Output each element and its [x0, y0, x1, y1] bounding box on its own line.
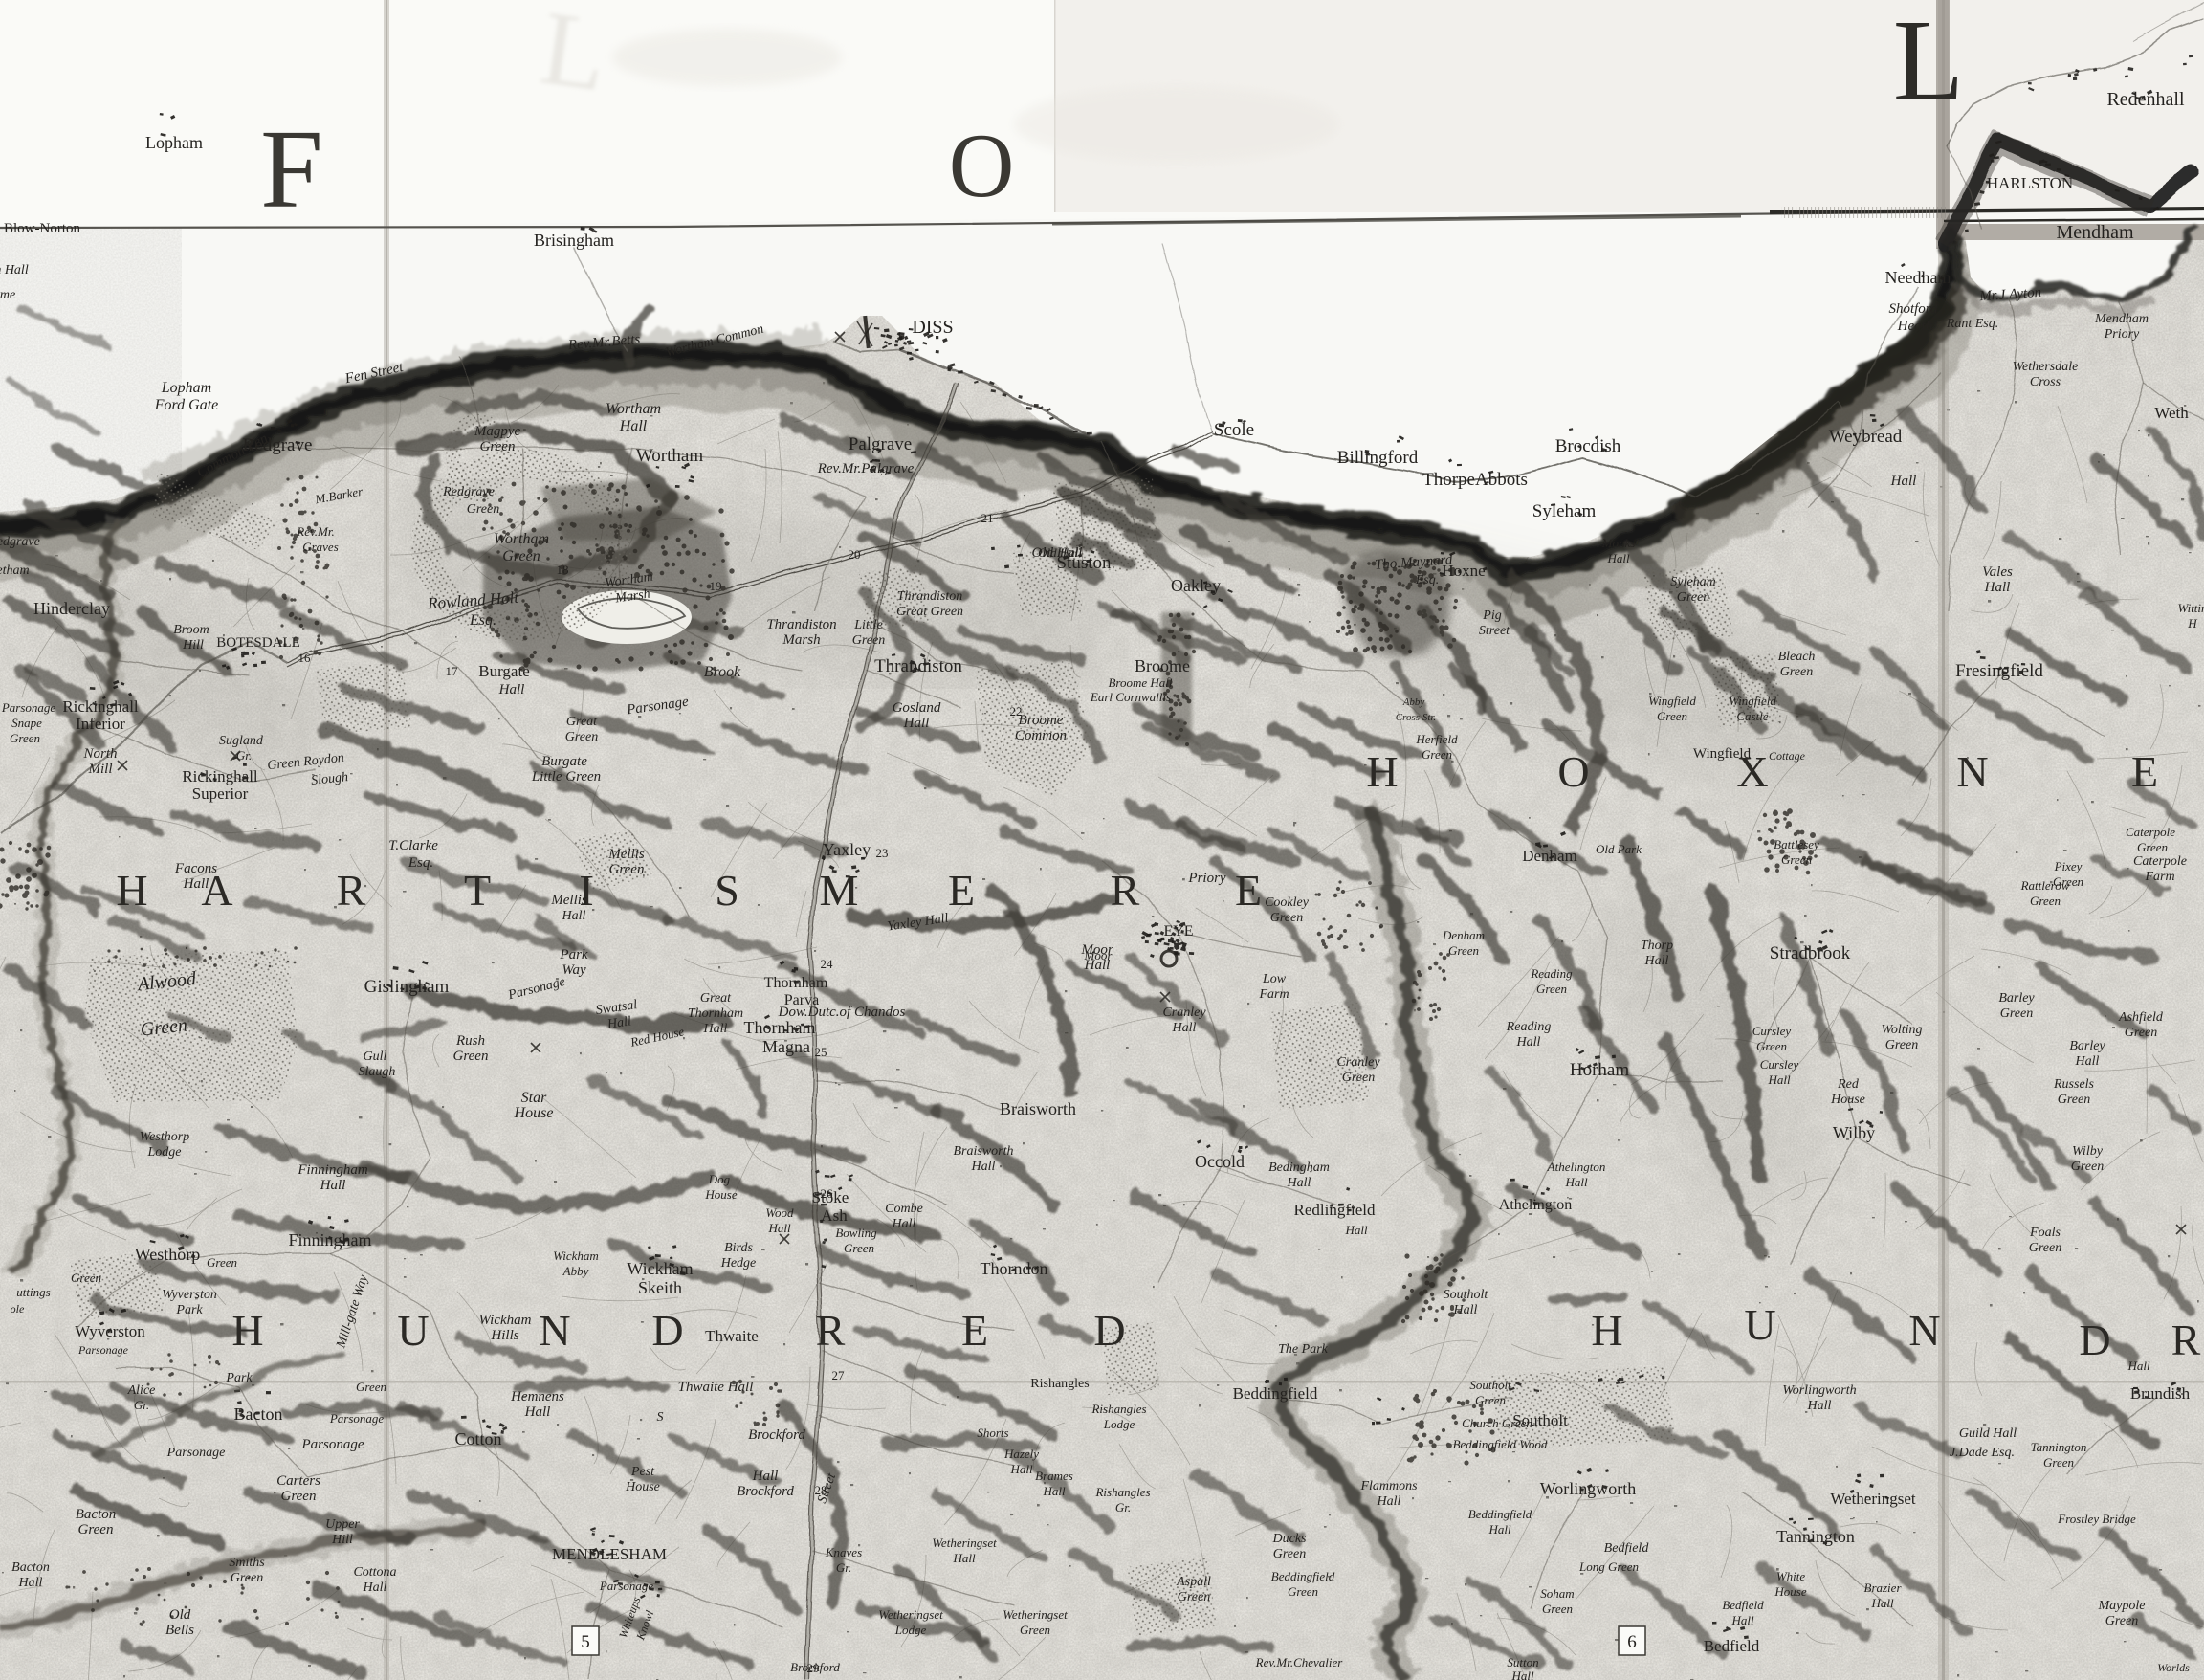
svg-text:Vales: Vales: [1982, 564, 2013, 580]
svg-text:Old Hall: Old Hall: [1038, 545, 1082, 560]
svg-text:24: 24: [821, 957, 834, 971]
svg-text:Reading: Reading: [1506, 1020, 1552, 1034]
svg-text:Occold: Occold: [1195, 1152, 1245, 1171]
svg-text:U: U: [1744, 1300, 1775, 1349]
svg-text:Yaxley: Yaxley: [823, 840, 871, 859]
svg-text:O: O: [1557, 747, 1589, 796]
svg-text:E: E: [948, 866, 975, 915]
svg-text:Bedfield: Bedfield: [1722, 1598, 1764, 1612]
svg-text:Brocdish: Brocdish: [1555, 436, 1621, 456]
svg-text:Graves: Graves: [302, 540, 339, 554]
svg-text:Pig: Pig: [1482, 608, 1501, 623]
svg-text:Church Green: Church Green: [1462, 1416, 1532, 1430]
svg-text:Gr.: Gr.: [236, 748, 252, 763]
svg-text:Skeith: Skeith: [638, 1278, 682, 1297]
svg-text:Rishangles: Rishangles: [1030, 1377, 1089, 1391]
svg-text:Rickinghall: Rickinghall: [182, 767, 258, 785]
svg-text:S: S: [715, 866, 739, 915]
svg-text:Tannington: Tannington: [2031, 1440, 2087, 1454]
svg-text:Green: Green: [852, 633, 885, 648]
svg-text:Rev.Mr.Palgrave: Rev.Mr.Palgrave: [817, 461, 915, 476]
svg-text:Soham: Soham: [1540, 1586, 1574, 1601]
svg-text:Brisingham: Brisingham: [534, 231, 614, 250]
svg-text:Cotton: Cotton: [454, 1429, 501, 1448]
svg-text:Green: Green: [1780, 665, 1813, 679]
svg-text:Beddingfield: Beddingfield: [1233, 1384, 1318, 1403]
svg-text:Green: Green: [2071, 1160, 2104, 1174]
svg-text:Syleham: Syleham: [1670, 575, 1715, 589]
svg-text:Castle: Castle: [1736, 709, 1768, 723]
svg-text:Star: Star: [521, 1090, 547, 1106]
svg-text:Wickham: Wickham: [553, 1249, 599, 1263]
svg-text:Knaves: Knaves: [825, 1545, 862, 1559]
svg-text:Green: Green: [1273, 1547, 1306, 1561]
svg-text:Denham: Denham: [1442, 928, 1485, 942]
svg-text:Pixey: Pixey: [2054, 859, 2083, 873]
svg-text:Green: Green: [207, 1255, 237, 1270]
svg-text:H: H: [116, 866, 147, 915]
svg-text:Brockford: Brockford: [737, 1484, 794, 1499]
svg-text:Fresingfield: Fresingfield: [1955, 661, 2043, 681]
svg-text:Wittin: Wittin: [2177, 601, 2204, 615]
svg-text:Frostley Bridge: Frostley Bridge: [2057, 1512, 2136, 1526]
svg-text:Athelington: Athelington: [1547, 1160, 1606, 1174]
svg-text:Westhorp: Westhorp: [140, 1130, 189, 1144]
svg-text:Green: Green: [609, 862, 645, 877]
svg-text:Gislingham: Gislingham: [364, 977, 450, 997]
svg-text:Esq.: Esq.: [408, 855, 433, 871]
svg-text:Way: Way: [562, 962, 586, 978]
svg-text:Thrandiston: Thrandiston: [874, 656, 962, 676]
svg-text:Hall: Hall: [363, 1581, 387, 1595]
svg-text:Long Green: Long Green: [1578, 1559, 1639, 1574]
svg-text:Mendham: Mendham: [2056, 222, 2134, 243]
svg-text:Low: Low: [1262, 972, 1287, 986]
svg-text:Reading: Reading: [1530, 966, 1573, 981]
svg-text:Weybread: Weybread: [1829, 427, 1903, 447]
svg-text:Blow-Norton: Blow-Norton: [4, 221, 80, 236]
svg-text:N: N: [1908, 1306, 1940, 1355]
svg-text:ole: ole: [11, 1302, 25, 1315]
svg-text:6: 6: [1627, 1632, 1637, 1652]
svg-text:Brundish: Brundish: [2130, 1384, 2191, 1403]
svg-text:Inferior: Inferior: [76, 715, 125, 733]
svg-text:Carters: Carters: [276, 1473, 320, 1489]
svg-text:Finningham: Finningham: [297, 1162, 367, 1178]
svg-text:Caterpole: Caterpole: [2126, 825, 2175, 839]
svg-text:Wetheringset: Wetheringset: [932, 1536, 997, 1550]
svg-text:E: E: [2131, 747, 2158, 796]
svg-text:Hall: Hall: [562, 909, 586, 923]
svg-text:Green: Green: [1020, 1623, 1050, 1637]
svg-text:Green: Green: [356, 1380, 386, 1394]
svg-text:20: 20: [849, 547, 861, 562]
svg-text:Needham: Needham: [1885, 268, 1951, 287]
svg-text:Cranley: Cranley: [1336, 1055, 1380, 1070]
svg-text:N: N: [539, 1306, 570, 1355]
svg-text:U: U: [397, 1306, 429, 1355]
svg-text:Brockford: Brockford: [790, 1660, 840, 1674]
svg-text:Oakley: Oakley: [1171, 576, 1221, 595]
svg-text:F: F: [260, 106, 323, 232]
svg-text:Southolt: Southolt: [1444, 1288, 1489, 1302]
svg-text:Dow.Dutc.of Chandos: Dow.Dutc.of Chandos: [778, 1005, 906, 1020]
svg-text:Thorp: Thorp: [1641, 939, 1673, 953]
svg-text:Wyverston: Wyverston: [162, 1288, 217, 1302]
svg-text:Lodge: Lodge: [1103, 1417, 1135, 1431]
svg-text:Broom: Broom: [173, 623, 209, 637]
svg-text:Sutton: Sutton: [1507, 1655, 1538, 1669]
svg-text:Sugland: Sugland: [219, 734, 264, 748]
svg-text:Green: Green: [1885, 1038, 1918, 1052]
svg-text:M: M: [820, 866, 859, 915]
svg-text:H: H: [2187, 616, 2197, 630]
svg-text:Wilby: Wilby: [1833, 1123, 1875, 1142]
svg-text:19: 19: [710, 579, 722, 593]
svg-text:Ashfield: Ashfield: [2118, 1010, 2164, 1025]
svg-text:Little Green: Little Green: [531, 769, 601, 785]
svg-text:T.Clarke: T.Clarke: [388, 838, 438, 853]
svg-text:Green: Green: [467, 502, 499, 517]
svg-text:Priory: Priory: [1187, 871, 1226, 886]
svg-text:Monks: Monks: [1601, 536, 1636, 550]
svg-text:Wethersdale: Wethersdale: [2013, 360, 2079, 374]
svg-text:Hemnens: Hemnens: [510, 1389, 564, 1404]
svg-text:Pest: Pest: [630, 1465, 655, 1479]
svg-text:16: 16: [298, 651, 312, 665]
svg-text:Great Green: Great Green: [896, 605, 963, 619]
svg-text:Hall: Hall: [1807, 1399, 1832, 1413]
svg-text:R: R: [2171, 1315, 2201, 1364]
svg-text:n Hall: n Hall: [0, 263, 29, 277]
svg-text:Beddingfield: Beddingfield: [1271, 1569, 1335, 1583]
svg-text:House: House: [1830, 1093, 1865, 1107]
svg-text:Park: Park: [225, 1371, 253, 1385]
svg-text:Thornham: Thornham: [764, 975, 828, 991]
svg-text:Wortham: Wortham: [636, 446, 703, 466]
svg-text:Birds: Birds: [724, 1241, 753, 1255]
svg-text:Redlingfield: Redlingfield: [1294, 1201, 1376, 1219]
svg-text:Dog: Dog: [708, 1172, 731, 1186]
svg-text:Rishangles: Rishangles: [1094, 1485, 1150, 1499]
svg-text:Broome: Broome: [1135, 656, 1190, 675]
svg-text:Wetheringset: Wetheringset: [878, 1607, 943, 1622]
svg-text:Lopham: Lopham: [145, 133, 203, 152]
svg-text:Green: Green: [565, 730, 598, 744]
svg-text:Lopham: Lopham: [161, 380, 211, 396]
svg-text:Superior: Superior: [192, 785, 249, 803]
svg-text:Broome Hall: Broome Hall: [1108, 675, 1172, 690]
svg-text:Little: Little: [853, 618, 883, 632]
svg-text:Denham: Denham: [1522, 847, 1577, 865]
svg-text:Battlesey: Battlesey: [1774, 837, 1819, 851]
svg-text:Wetheringset: Wetheringset: [1003, 1607, 1068, 1622]
svg-text:S: S: [657, 1410, 664, 1425]
svg-text:Abby: Abby: [562, 1264, 589, 1278]
svg-text:Esq.: Esq.: [469, 612, 496, 629]
svg-text:Smiths: Smiths: [229, 1556, 265, 1570]
svg-text:Wortham: Wortham: [494, 531, 549, 547]
svg-text:Parsonage: Parsonage: [329, 1411, 385, 1426]
svg-text:Gull: Gull: [364, 1050, 387, 1064]
svg-text:Great: Great: [700, 991, 732, 1006]
svg-text:Thornham: Thornham: [688, 1006, 743, 1021]
svg-text:Green: Green: [1677, 590, 1709, 605]
svg-text:Wyverston: Wyverston: [75, 1322, 145, 1340]
svg-text:Thwaite: Thwaite: [705, 1327, 759, 1345]
svg-text:Alice: Alice: [127, 1383, 156, 1398]
svg-text:Hall: Hall: [1488, 1522, 1511, 1536]
svg-text:Slaugh: Slaugh: [359, 1065, 396, 1079]
svg-text:Thrandiston: Thrandiston: [766, 617, 836, 632]
svg-text:Green: Green: [1475, 1393, 1506, 1407]
svg-text:Worlds: Worlds: [2157, 1661, 2190, 1674]
svg-text:White: White: [1776, 1569, 1806, 1583]
svg-text:Green: Green: [453, 1049, 489, 1064]
svg-text:Wilby: Wilby: [2072, 1144, 2104, 1159]
svg-text:North: North: [82, 746, 117, 762]
svg-text:Moor: Moor: [1084, 948, 1113, 962]
svg-text:Weth: Weth: [2154, 404, 2189, 422]
svg-text:Lodge: Lodge: [894, 1623, 927, 1637]
svg-text:Brockford: Brockford: [748, 1427, 805, 1443]
svg-text:Beddingfield: Beddingfield: [1468, 1507, 1532, 1521]
svg-text:Green: Green: [1781, 852, 1812, 867]
svg-text:Thornham: Thornham: [744, 1018, 816, 1037]
svg-text:Parsonage: Parsonage: [599, 1579, 654, 1593]
svg-text:Barley: Barley: [1998, 991, 2035, 1006]
svg-text:Green: Green: [231, 1571, 263, 1585]
svg-text:Redgrave: Redgrave: [0, 535, 40, 549]
svg-text:Gr.: Gr.: [134, 1398, 149, 1412]
svg-text:ThorpeAbbots: ThorpeAbbots: [1422, 470, 1528, 490]
svg-text:Green: Green: [1288, 1584, 1318, 1599]
svg-text:Marsh: Marsh: [782, 632, 820, 648]
svg-text:Hall: Hall: [1042, 1484, 1066, 1498]
svg-text:Priory: Priory: [2104, 327, 2140, 342]
svg-text:Hall: Hall: [903, 716, 930, 731]
svg-text:Ducks: Ducks: [1272, 1532, 1308, 1546]
svg-text:Hall: Hall: [2127, 1359, 2150, 1373]
svg-text:Cursley: Cursley: [1752, 1024, 1792, 1038]
svg-text:Green: Green: [2137, 840, 2168, 854]
svg-text:Farm: Farm: [1258, 987, 1289, 1002]
svg-text:Green: Green: [71, 1271, 101, 1285]
svg-text:Green: Green: [2125, 1026, 2157, 1040]
svg-text:Hall: Hall: [1644, 954, 1669, 968]
svg-text:Thwaite Hall: Thwaite Hall: [678, 1380, 754, 1395]
svg-text:21: 21: [981, 511, 994, 525]
svg-text:Green: Green: [1342, 1071, 1375, 1085]
svg-text:Green: Green: [2105, 1614, 2138, 1628]
svg-text:Hills: Hills: [490, 1328, 518, 1343]
svg-text:MENDLESHAM: MENDLESHAM: [552, 1545, 667, 1563]
svg-text:Caterpole: Caterpole: [2133, 854, 2187, 869]
svg-text:H: H: [231, 1306, 263, 1355]
svg-text:Bedfield: Bedfield: [1704, 1637, 1760, 1655]
svg-text:Parsonage: Parsonage: [77, 1343, 129, 1357]
svg-text:N: N: [1956, 747, 1988, 796]
svg-text:Hinderclay: Hinderclay: [33, 599, 110, 618]
svg-text:Common: Common: [1015, 728, 1067, 743]
svg-text:Foals: Foals: [2029, 1226, 2061, 1240]
svg-text:Bells: Bells: [165, 1623, 194, 1638]
svg-text:Green: Green: [2030, 894, 2061, 908]
svg-text:Hall: Hall: [1984, 580, 2011, 595]
svg-text:Gr.: Gr.: [1115, 1500, 1131, 1514]
svg-text:R: R: [816, 1306, 846, 1355]
svg-text:The Park: The Park: [1278, 1342, 1329, 1357]
svg-text:DISS: DISS: [912, 317, 953, 338]
svg-text:me: me: [0, 288, 15, 302]
svg-text:Upper: Upper: [325, 1517, 360, 1532]
svg-text:Southolt: Southolt: [1469, 1378, 1511, 1392]
svg-text:Hall: Hall: [703, 1022, 728, 1036]
svg-text:Redenhall: Redenhall: [2106, 89, 2185, 110]
svg-text:House: House: [625, 1480, 660, 1494]
svg-text:Maypole: Maypole: [2098, 1599, 2146, 1613]
svg-text:Rishangles: Rishangles: [1091, 1402, 1146, 1416]
svg-text:Cross Str.: Cross Str.: [1396, 712, 1436, 723]
svg-text:Ash: Ash: [821, 1206, 848, 1225]
svg-text:Mendham: Mendham: [2094, 312, 2149, 326]
svg-text:Parsonage: Parsonage: [1, 700, 56, 715]
svg-text:Hall: Hall: [1606, 551, 1630, 565]
svg-text:Rant Esq.: Rant Esq.: [1946, 317, 1998, 331]
svg-text:Barley: Barley: [2069, 1039, 2105, 1053]
svg-text:H: H: [1366, 747, 1398, 796]
svg-text:Bleach: Bleach: [1778, 650, 1816, 664]
svg-text:Green: Green: [2043, 1455, 2074, 1470]
svg-text:Worlingworth: Worlingworth: [1540, 1479, 1637, 1498]
svg-text:Green: Green: [1542, 1602, 1573, 1616]
svg-text:Wickham: Wickham: [479, 1313, 532, 1328]
svg-text:Shotford: Shotford: [1888, 301, 1938, 317]
svg-text:Braisworth: Braisworth: [1000, 1099, 1076, 1118]
svg-text:Scole: Scole: [1214, 420, 1254, 440]
svg-text:Hedge: Hedge: [720, 1256, 757, 1271]
svg-text:netham: netham: [0, 564, 30, 578]
svg-text:Heath: Heath: [1897, 319, 1933, 334]
svg-text:Billingford: Billingford: [1337, 448, 1419, 468]
svg-text:Syleham: Syleham: [1532, 501, 1597, 521]
svg-text:Beddingfield Wood: Beddingfield Wood: [1453, 1437, 1548, 1451]
svg-text:House: House: [514, 1105, 554, 1121]
svg-text:Thorndon: Thorndon: [981, 1259, 1048, 1278]
svg-text:Stradbrook: Stradbrook: [1770, 943, 1851, 963]
svg-text:R: R: [337, 866, 366, 915]
svg-text:Hall: Hall: [1516, 1035, 1541, 1050]
svg-text:Bedingham: Bedingham: [1268, 1161, 1330, 1175]
svg-text:Green: Green: [1178, 1590, 1210, 1604]
svg-text:Hall: Hall: [1767, 1072, 1791, 1087]
svg-text:E: E: [961, 1306, 988, 1355]
svg-text:Finningham: Finningham: [288, 1230, 371, 1249]
svg-text:D: D: [1093, 1306, 1125, 1355]
svg-text:Guild Hall: Guild Hall: [1959, 1426, 2017, 1441]
svg-text:Green: Green: [10, 731, 40, 745]
svg-text:Wingfield: Wingfield: [1693, 746, 1752, 762]
svg-text:Park: Park: [175, 1303, 203, 1317]
svg-text:Wolting: Wolting: [1881, 1023, 1922, 1037]
svg-text:E: E: [1235, 866, 1262, 915]
svg-text:HARLSTON: HARLSTON: [1987, 174, 2073, 192]
svg-text:Hall: Hall: [18, 1576, 43, 1590]
svg-text:Hall: Hall: [498, 682, 525, 697]
svg-text:Magpye: Magpye: [474, 424, 521, 439]
svg-text:Park: Park: [559, 947, 588, 962]
svg-text:Burgate: Burgate: [478, 662, 530, 680]
svg-text:Parsonage: Parsonage: [166, 1446, 226, 1460]
svg-text:Herfield: Herfield: [1415, 732, 1458, 746]
svg-text:18: 18: [557, 563, 569, 577]
svg-text:Stoke: Stoke: [812, 1188, 849, 1206]
svg-text:Bacton: Bacton: [234, 1404, 283, 1424]
svg-text:Wood: Wood: [765, 1205, 794, 1220]
svg-text:House: House: [1774, 1584, 1806, 1599]
svg-text:Bedfield: Bedfield: [1604, 1541, 1650, 1556]
svg-text:Hall: Hall: [892, 1217, 916, 1231]
svg-text:Facons: Facons: [174, 861, 217, 876]
svg-text:Hall: Hall: [752, 1469, 779, 1484]
svg-text:Old Park: Old Park: [1596, 842, 1642, 856]
svg-text:Braisworth: Braisworth: [953, 1144, 1013, 1159]
svg-text:Wetheringset: Wetheringset: [1830, 1490, 1916, 1508]
svg-text:Hall: Hall: [1510, 1669, 1534, 1680]
svg-text:Green: Green: [502, 548, 540, 564]
svg-text:Thrandiston: Thrandiston: [897, 589, 962, 604]
svg-text:uttings: uttings: [16, 1285, 50, 1299]
svg-text:Hall: Hall: [1730, 1613, 1754, 1627]
svg-text:Green: Green: [1448, 943, 1479, 958]
svg-text:27: 27: [832, 1368, 846, 1382]
svg-text:Cottage: Cottage: [1769, 749, 1806, 763]
svg-text:Green: Green: [1536, 982, 1567, 996]
svg-text:Wickham: Wickham: [627, 1259, 693, 1278]
svg-text:Russels: Russels: [2053, 1077, 2095, 1092]
svg-text:Mill: Mill: [88, 762, 113, 777]
svg-text:Green: Green: [2000, 1006, 2033, 1021]
svg-text:Broome: Broome: [1019, 713, 1064, 728]
svg-text:Brazier: Brazier: [1864, 1581, 1903, 1595]
svg-text:Hall: Hall: [2075, 1054, 2100, 1069]
svg-text:Magna: Magna: [762, 1037, 810, 1056]
svg-text:Flammons: Flammons: [1359, 1479, 1418, 1493]
svg-text:House: House: [704, 1187, 737, 1202]
svg-text:17: 17: [446, 664, 459, 678]
svg-text:Esq.: Esq.: [1415, 573, 1440, 587]
svg-text:Hall: Hall: [320, 1178, 346, 1193]
svg-text:Hall: Hall: [619, 418, 648, 434]
svg-text:D: D: [2079, 1315, 2110, 1364]
svg-text:L: L: [1893, 0, 1965, 125]
svg-text:EYE: EYE: [1163, 923, 1193, 939]
svg-text:Worlingworth: Worlingworth: [1782, 1383, 1856, 1398]
svg-text:Snape: Snape: [11, 716, 42, 730]
svg-text:J.Dade Esq.: J.Dade Esq.: [1950, 1446, 2015, 1460]
svg-text:Cookley: Cookley: [1265, 895, 1310, 910]
svg-text:Green: Green: [78, 1522, 114, 1537]
svg-text:Wingfield: Wingfield: [1648, 694, 1696, 708]
svg-text:Athelington: Athelington: [1499, 1197, 1572, 1213]
svg-text:Hall: Hall: [1287, 1176, 1311, 1190]
svg-text:Hall: Hall: [767, 1221, 791, 1235]
svg-text:Green: Green: [2029, 1241, 2061, 1255]
svg-text:Green: Green: [2058, 1093, 2090, 1107]
svg-text:5: 5: [581, 1632, 590, 1652]
svg-text:Shorts: Shorts: [977, 1426, 1008, 1440]
svg-text:Hall: Hall: [1890, 474, 1917, 489]
